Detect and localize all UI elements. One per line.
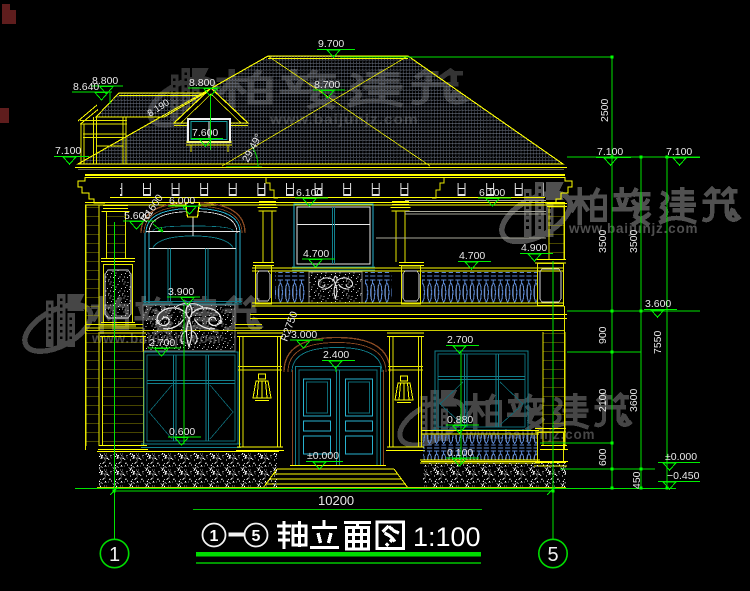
- svg-text:7.600: 7.600: [192, 127, 218, 139]
- svg-text:4.700: 4.700: [303, 248, 329, 260]
- svg-text:900: 900: [597, 326, 609, 344]
- svg-text:7.100: 7.100: [666, 146, 692, 158]
- svg-text:0.600: 0.600: [169, 426, 195, 438]
- svg-text:4.900: 4.900: [521, 242, 547, 254]
- svg-text:−0.450: −0.450: [667, 470, 700, 482]
- svg-text:600: 600: [597, 448, 609, 466]
- svg-text:7.100: 7.100: [55, 145, 81, 157]
- svg-text:9.700: 9.700: [318, 38, 344, 50]
- svg-text:1: 1: [210, 528, 219, 545]
- svg-text:5: 5: [547, 544, 558, 566]
- svg-text:4.700: 4.700: [459, 250, 485, 262]
- svg-text:1:100: 1:100: [413, 522, 481, 552]
- svg-text:3500: 3500: [597, 229, 609, 253]
- svg-text:8.800: 8.800: [189, 77, 215, 89]
- svg-text:7550: 7550: [652, 330, 664, 354]
- svg-text:10200: 10200: [318, 493, 354, 508]
- svg-text:6.100: 6.100: [296, 187, 322, 199]
- svg-text:7.100: 7.100: [597, 146, 623, 158]
- svg-text:2500: 2500: [599, 98, 611, 122]
- svg-text:1: 1: [109, 544, 120, 566]
- svg-text:3600: 3600: [628, 388, 640, 412]
- svg-text:2.700: 2.700: [447, 334, 473, 346]
- svg-text:8.700: 8.700: [314, 79, 340, 91]
- svg-text:5: 5: [252, 528, 261, 545]
- svg-text:3500: 3500: [628, 229, 640, 253]
- svg-text:8.640: 8.640: [73, 81, 99, 93]
- svg-text:450: 450: [631, 471, 643, 489]
- svg-text:2.700: 2.700: [149, 337, 175, 349]
- svg-text:6.000: 6.000: [169, 195, 195, 207]
- svg-text:6.100: 6.100: [479, 187, 505, 199]
- svg-text:3.000: 3.000: [291, 329, 317, 341]
- svg-text:2.400: 2.400: [323, 349, 349, 361]
- svg-text:±0.000: ±0.000: [307, 450, 339, 462]
- svg-text:3.900: 3.900: [168, 286, 194, 298]
- svg-text:0.100: 0.100: [447, 447, 473, 459]
- svg-text:±0.000: ±0.000: [665, 451, 697, 463]
- svg-text:2100: 2100: [597, 388, 609, 412]
- svg-text:3.600: 3.600: [645, 298, 671, 310]
- svg-text:0.880: 0.880: [447, 414, 473, 426]
